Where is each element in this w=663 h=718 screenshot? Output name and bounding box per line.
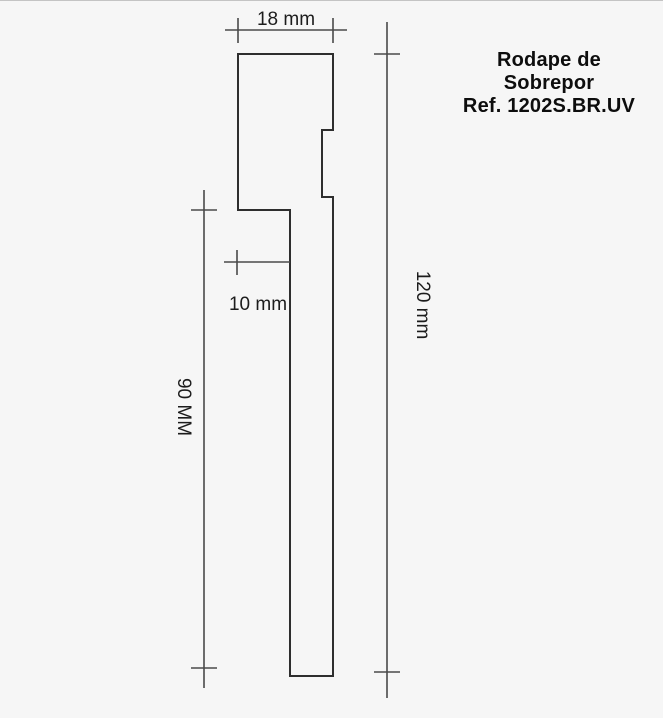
title-line-1: Rodape de (439, 49, 659, 72)
dimension-strip-height (191, 190, 217, 688)
drawing-canvas: 18 mm 10 mm 90 MM 120 mm Rodape de Sobre… (0, 0, 663, 718)
dimension-step-offset (224, 250, 290, 275)
title-line-2: Sobrepor (439, 72, 659, 95)
dim-label-90mm: 90 MM (173, 378, 194, 436)
dimension-total-height (374, 22, 400, 698)
dim-label-10mm: 10 mm (229, 294, 287, 315)
title-block: Rodape de Sobrepor Ref. 1202S.BR.UV (439, 49, 659, 118)
dim-label-120mm: 120 mm (412, 271, 433, 340)
dim-label-18mm: 18 mm (257, 9, 315, 30)
title-line-3: Ref. 1202S.BR.UV (439, 95, 659, 118)
baseboard-profile-outline (238, 54, 333, 676)
